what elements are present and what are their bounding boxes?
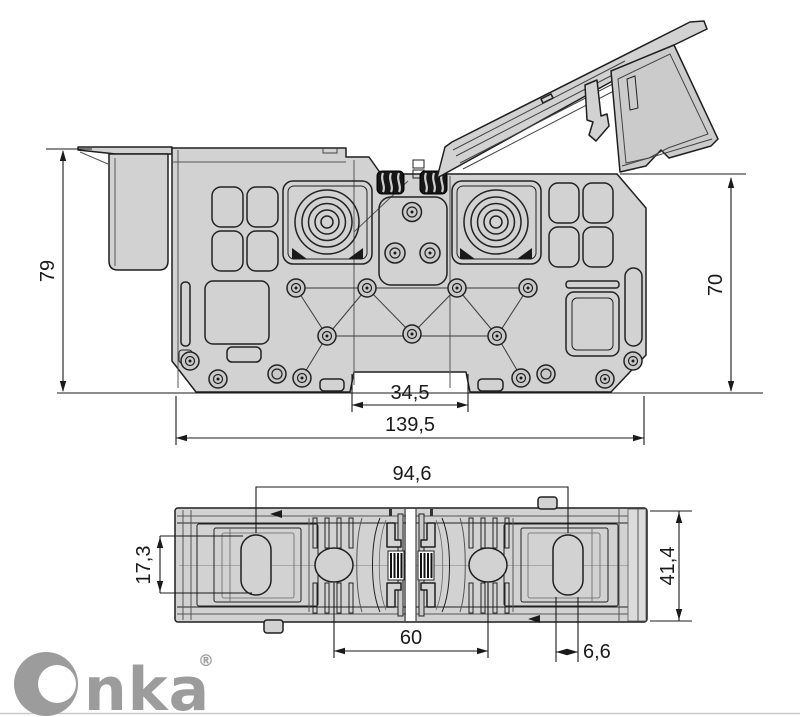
hatch-block-left (388, 551, 404, 580)
end-cap-right (628, 509, 646, 621)
cover-latch-hook (585, 80, 609, 141)
end-flange (78, 147, 172, 270)
terminal-body (172, 148, 646, 392)
hatch-block-right (418, 551, 434, 580)
technical-drawing: 79 70 34,5 139,5 (0, 0, 800, 717)
mounting-slot-right (553, 535, 583, 595)
dim-height-right: 70 (705, 274, 727, 296)
logo-o-icon (14, 652, 78, 716)
snap-tab-top (538, 497, 557, 509)
logo-wordmark: nka (84, 655, 210, 717)
side-view: 79 70 34,5 139,5 (37, 21, 763, 445)
dim-slot-center-distance: 94,6 (393, 463, 432, 485)
registered-mark: ® (198, 651, 214, 670)
dim-height-left: 79 (37, 260, 59, 282)
drawing-canvas: 79 70 34,5 139,5 (0, 0, 800, 717)
dim-rail-notch-width: 34,5 (391, 382, 430, 404)
onka-logo: nka ® (14, 651, 214, 717)
hinged-cover-open (437, 21, 718, 178)
dim-screw-center-distance: 60 (400, 627, 422, 649)
dim-slot-width: 6,6 (583, 641, 611, 663)
dim-overall-depth: 41,4 (657, 547, 679, 586)
mounting-slot-left (241, 535, 271, 595)
dim-slot-height: 17,3 (133, 546, 155, 585)
dim-overall-width: 139,5 (385, 414, 435, 436)
plan-view: 94,6 17,3 41,4 60 6,6 (133, 463, 692, 663)
snap-tab-bottom (264, 620, 283, 633)
